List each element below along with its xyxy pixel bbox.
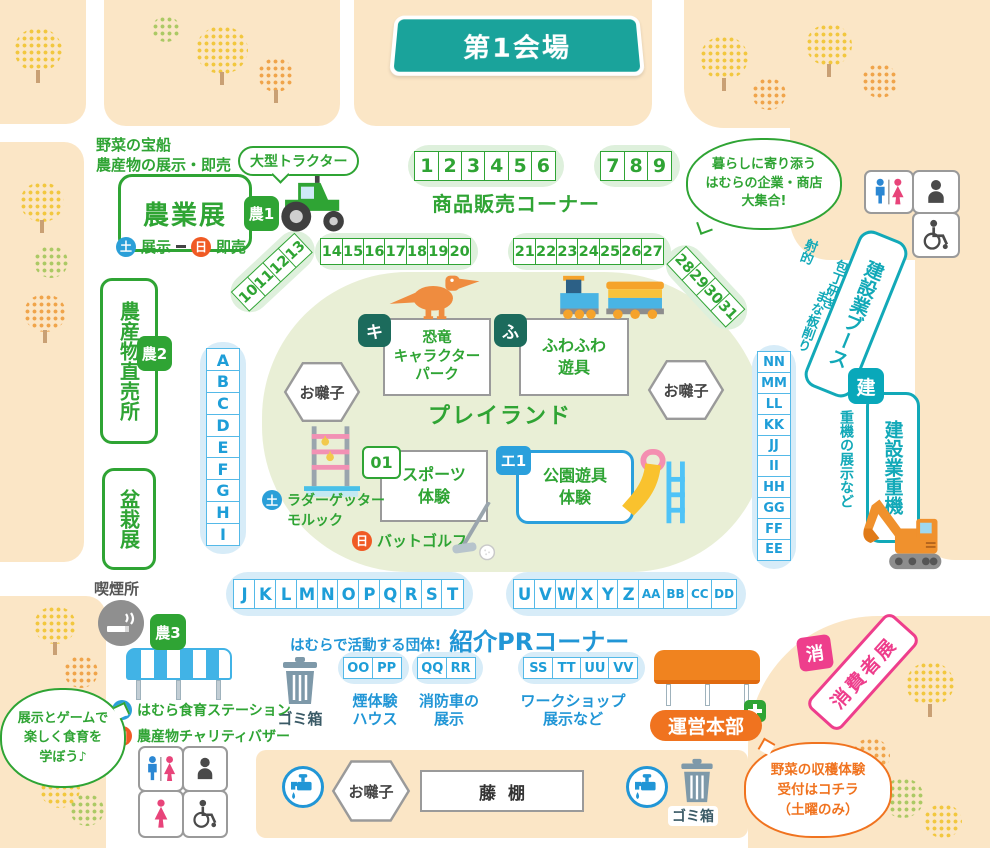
tractor-bubble: 大型トラクター xyxy=(238,146,359,176)
stall-letter: Z xyxy=(617,579,640,609)
stall-letter: K xyxy=(254,579,277,609)
tree-icon xyxy=(752,78,786,110)
stall-letter: V xyxy=(534,579,557,609)
toilet-men-women-icon xyxy=(864,170,914,214)
sports-line1: スポーツ xyxy=(402,464,466,486)
tree-icon xyxy=(258,58,294,92)
stall-numbers: 789 xyxy=(602,151,672,181)
sunday-label: 即売 xyxy=(216,236,246,257)
tree-icon xyxy=(64,656,98,688)
stall-number: 21 xyxy=(513,238,536,265)
stall-letter: I xyxy=(206,523,240,547)
stall-strip-J-T: JKLMNOPQRST xyxy=(226,572,473,616)
agri-note-line1: 野菜の宝船 xyxy=(96,136,231,156)
food-sat-label: はむら食育ステーション xyxy=(137,700,291,720)
dino-badge: キ xyxy=(358,314,391,347)
smoking-area-label: 喫煙所 xyxy=(94,578,139,599)
stall-letter: VV xyxy=(608,657,638,679)
food-bubble-line1: 展示とゲームで xyxy=(18,709,109,729)
food-tent-icon xyxy=(126,648,232,700)
fuwa-line2: 遊具 xyxy=(558,357,590,379)
stall-letter: PP xyxy=(372,657,402,679)
stall-letter: E xyxy=(206,436,240,460)
trash-icon xyxy=(280,656,320,706)
stall-number: 19 xyxy=(427,238,450,265)
trash-label: ゴミ箱 xyxy=(668,806,718,826)
stall-letter: LL xyxy=(757,393,791,416)
hq-tent-icon xyxy=(654,650,760,706)
water-tap-icon xyxy=(282,766,324,808)
companies-bubble-line2: はむらの企業・商店 xyxy=(705,175,822,194)
stall-letter: T xyxy=(441,579,464,609)
ohayashi-hexagon: お囃子 xyxy=(330,758,412,824)
stall-letters: ABCDEFGHI xyxy=(206,350,240,546)
stall-letter: F xyxy=(206,457,240,481)
food-sun-label: 農産物チャリティバザー xyxy=(137,726,290,746)
park-equipment-box: 公園遊具 体験 xyxy=(516,450,634,524)
stall-number: 14 xyxy=(320,238,343,265)
tree-icon xyxy=(152,16,180,42)
heavy-note-label: 重機の展示など xyxy=(836,410,856,508)
sat-activity: 土 ラダーゲッター モルック xyxy=(262,490,385,530)
stall-number: 7 xyxy=(600,151,625,181)
pr-group-label-workshop: ワークショップ 展示など xyxy=(508,692,638,728)
stall-number: 2 xyxy=(438,151,463,181)
dino-park-line2: キャラクター xyxy=(394,348,480,367)
stall-strip-14-20: 14151617181920 xyxy=(315,233,478,270)
sat-activity-line2: モルック xyxy=(287,510,385,530)
saturday-badge: 土 xyxy=(262,490,282,510)
stall-number: 6 xyxy=(531,151,556,181)
stall-number: 4 xyxy=(484,151,509,181)
sales-corner-label: 商品販売コーナー xyxy=(432,188,600,217)
wheelchair-icon xyxy=(912,212,960,258)
stall-strip-U-DD: UVWXYZAABBCCDD xyxy=(506,572,746,616)
ken-badge: 建 xyxy=(848,368,884,404)
stall-numbers: 123456 xyxy=(416,151,556,181)
train-icon xyxy=(556,272,671,320)
pr-intro: はむらで活動する団体! xyxy=(290,634,441,655)
stall-number: 24 xyxy=(577,238,600,265)
stall-letter: RR xyxy=(446,657,476,679)
tree-icon xyxy=(20,182,64,222)
tree-icon xyxy=(24,294,66,332)
toilet-men-women-icon xyxy=(138,746,184,792)
golf-putter-icon xyxy=(448,502,502,562)
stall-numbers: 14151617181920 xyxy=(322,238,471,265)
agri2-badge: 農2 xyxy=(137,336,172,371)
stall-letter: U xyxy=(513,579,536,609)
dino-park-line3: パーク xyxy=(415,366,459,385)
companies-bubble-line1: 暮らしに寄り添う xyxy=(712,156,816,175)
stall-number: 8 xyxy=(624,151,649,181)
page-title: 第1会場 xyxy=(462,26,571,64)
stall-letter: J xyxy=(233,579,256,609)
wisteria-trellis-box: 藤棚 xyxy=(420,770,584,812)
stall-letter: EE xyxy=(757,539,791,562)
playland-label: プレイランド xyxy=(428,398,572,430)
companies-bubble-line3: 大集合! xyxy=(742,193,787,212)
slide-icon xyxy=(618,448,688,530)
stall-letter: O xyxy=(337,579,360,609)
stall-letter: N xyxy=(317,579,340,609)
pr-title: 紹介PRコーナー xyxy=(449,622,629,657)
bonsai-label: 盆栽展 xyxy=(115,489,144,549)
ohayashi-label: お囃子 xyxy=(282,360,362,424)
stall-letter: OO xyxy=(343,657,373,679)
hq-label-pill: 運営本部 xyxy=(650,710,762,741)
stall-number: 20 xyxy=(448,238,471,265)
agri-note: 野菜の宝船 農産物の展示・即売 xyxy=(96,136,231,175)
stall-number: 23 xyxy=(556,238,579,265)
stall-letter: L xyxy=(275,579,298,609)
stall-letter: TT xyxy=(552,657,582,679)
stall-letter: CC xyxy=(687,579,713,609)
stall-letter: R xyxy=(400,579,423,609)
pr-group-line: ワークショップ xyxy=(508,692,638,710)
stall-number: 3 xyxy=(461,151,486,181)
harvest-bubble-line1: 野菜の収穫体験 xyxy=(771,760,866,780)
stall-letter: DD xyxy=(711,579,737,609)
stall-letter: Q xyxy=(379,579,402,609)
food-education-bubble: 展示とゲームで 楽しく食育を 学ぼう♪ xyxy=(0,688,126,788)
stall-letter: MM xyxy=(757,372,791,395)
harvest-bubble: 野菜の収穫体験 受付はコチラ （土曜のみ） xyxy=(744,742,892,838)
bonsai-box: 盆栽展 xyxy=(102,468,156,570)
stall-letter: FF xyxy=(757,518,791,541)
stall-strip-7-9: 789 xyxy=(594,145,680,187)
dinosaur-icon xyxy=(385,268,485,320)
ohayashi-hexagon: お囃子 xyxy=(646,358,726,422)
stall-letter: X xyxy=(576,579,599,609)
agri-days: 土 展示 日 即売 xyxy=(116,236,246,257)
stall-strip-A-I: ABCDEFGHI xyxy=(200,342,246,554)
stall-number: 22 xyxy=(535,238,558,265)
water-tap-icon xyxy=(626,766,668,808)
baby-icon xyxy=(182,746,228,792)
wheelchair-icon xyxy=(182,790,228,838)
stall-letter: S xyxy=(421,579,444,609)
ohayashi-hexagon: お囃子 xyxy=(282,360,362,424)
agri-note-line2: 農産物の展示・即売 xyxy=(96,156,231,176)
harvest-bubble-line2: 受付はコチラ xyxy=(778,780,859,800)
sports-badge: 01 xyxy=(362,446,401,479)
stall-letters: SSTTUUVV xyxy=(525,657,638,679)
park-badge: エ1 xyxy=(496,446,531,475)
wisteria-label: 藤棚 xyxy=(467,779,537,804)
dino-park-line1: 恐竜 xyxy=(423,329,452,348)
tree-icon xyxy=(70,794,104,826)
companies-bubble: 暮らしに寄り添う はむらの企業・商店 大集合! xyxy=(686,138,842,230)
stall-letter: Y xyxy=(597,579,620,609)
tree-icon xyxy=(906,662,954,706)
stall-number: 5 xyxy=(508,151,533,181)
stall-numbers: 21222324252627 xyxy=(515,238,664,265)
pr-group-label-firetruck: 消防車の 展示 xyxy=(404,692,494,728)
stall-letters: JKLMNOPQRST xyxy=(235,579,464,609)
stall-letter: SS xyxy=(523,657,553,679)
baby-icon xyxy=(912,170,960,214)
stall-letter: JJ xyxy=(757,435,791,458)
pr-group-line: 展示 xyxy=(404,710,494,728)
tree-icon xyxy=(14,28,62,72)
food-bubble-line3: 学ぼう♪ xyxy=(39,748,86,768)
stall-letter: D xyxy=(206,414,240,438)
saturday-label: 展示 xyxy=(141,236,171,257)
tree-icon xyxy=(806,24,852,66)
pr-group-line: 消防車の xyxy=(404,692,494,710)
dino-park-box: 恐竜 キャラクター パーク xyxy=(383,318,491,396)
park-line1: 公園遊具 xyxy=(543,465,607,487)
stall-letter: BB xyxy=(663,579,689,609)
pr-group-line: 展示など xyxy=(508,710,638,728)
agri-expo-label: 農業展 xyxy=(143,195,227,232)
tree-icon xyxy=(34,606,76,644)
venue-title-banner: 第1会場 xyxy=(389,16,645,76)
stall-strip-NN-EE: NNMMLLKKJJIIHHGGFFEE xyxy=(752,345,796,569)
tractor-bubble-label: 大型トラクター xyxy=(250,154,347,170)
stall-letter: KK xyxy=(757,414,791,437)
stall-number: 27 xyxy=(641,238,664,265)
stall-letter: AA xyxy=(638,579,664,609)
food-sun-line: 日 農産物チャリティバザー xyxy=(112,726,290,746)
stall-number: 15 xyxy=(342,238,365,265)
sports-badge-label: 01 xyxy=(370,453,392,472)
stall-letter: GG xyxy=(757,497,791,520)
tree-icon xyxy=(196,26,248,74)
ohayashi-label: お囃子 xyxy=(330,758,412,824)
stall-number: 26 xyxy=(620,238,643,265)
park-line2: 体験 xyxy=(559,487,591,509)
tree-icon xyxy=(924,804,962,838)
stall-number: 18 xyxy=(406,238,429,265)
stall-letter: C xyxy=(206,392,240,416)
bubble-tail xyxy=(696,218,713,235)
toilet-women-icon xyxy=(138,790,184,838)
hq-label: 運営本部 xyxy=(668,712,744,739)
stall-letters: OOPP xyxy=(345,657,402,679)
day-connector xyxy=(176,245,186,248)
stall-letters: NNMMLLKKJJIIHHGGFFEE xyxy=(757,353,791,561)
sunday-badge: 日 xyxy=(352,531,372,551)
stall-letter: M xyxy=(296,579,319,609)
excavator-icon xyxy=(862,486,954,573)
venue-map: 第1会場 野菜の宝船 農産物の展示・即売 大型トラクター 農業展 農1 土 展示… xyxy=(0,0,990,848)
fuwa-badge: ふ xyxy=(494,314,527,347)
stall-letters: UVWXYZAABBCCDD xyxy=(515,579,737,609)
stall-letter: HH xyxy=(757,476,791,499)
tree-icon xyxy=(862,64,898,98)
stall-letter: A xyxy=(206,348,240,372)
ohayashi-label: お囃子 xyxy=(646,358,726,422)
stall-letter: H xyxy=(206,501,240,525)
saturday-badge: 土 xyxy=(116,237,136,257)
sat-activity-line1: ラダーゲッター xyxy=(287,490,385,510)
harvest-bubble-line3: （土曜のみ） xyxy=(778,800,859,820)
stall-letter: P xyxy=(358,579,381,609)
stall-letter: NN xyxy=(757,351,791,374)
smoking-icon xyxy=(98,600,144,646)
agri3-badge: 農3 xyxy=(150,614,186,650)
fuwa-box: ふわふわ 遊具 xyxy=(519,318,629,396)
food-bubble-line2: 楽しく食育を xyxy=(24,728,102,748)
stall-letter: G xyxy=(206,479,240,503)
stall-letter: W xyxy=(555,579,578,609)
pr-corner-header: はむらで活動する団体! 紹介PRコーナー xyxy=(290,622,629,657)
stall-letter: II xyxy=(757,455,791,478)
sho-badge: 消 xyxy=(796,634,834,672)
stall-number: 16 xyxy=(363,238,386,265)
stall-letters: QQRR xyxy=(419,657,476,679)
stall-strip-21-27: 21222324252627 xyxy=(508,233,671,270)
trash-icon xyxy=(678,758,716,804)
stall-number: 17 xyxy=(384,238,407,265)
fuwa-line1: ふわふわ xyxy=(542,335,606,357)
stall-letter: UU xyxy=(580,657,610,679)
stall-letter: QQ xyxy=(417,657,447,679)
stall-strip-1-6: 123456 xyxy=(408,145,564,187)
stall-number: 1 xyxy=(414,151,439,181)
tree-icon xyxy=(34,246,68,278)
stall-number: 9 xyxy=(647,151,672,181)
stall-number: 25 xyxy=(599,238,622,265)
sunday-badge: 日 xyxy=(191,237,211,257)
tree-icon xyxy=(700,36,748,80)
sports-line2: 体験 xyxy=(418,486,450,508)
food-sat-line: 土 はむら食育ステーション xyxy=(112,700,291,720)
stall-letter: B xyxy=(206,370,240,394)
